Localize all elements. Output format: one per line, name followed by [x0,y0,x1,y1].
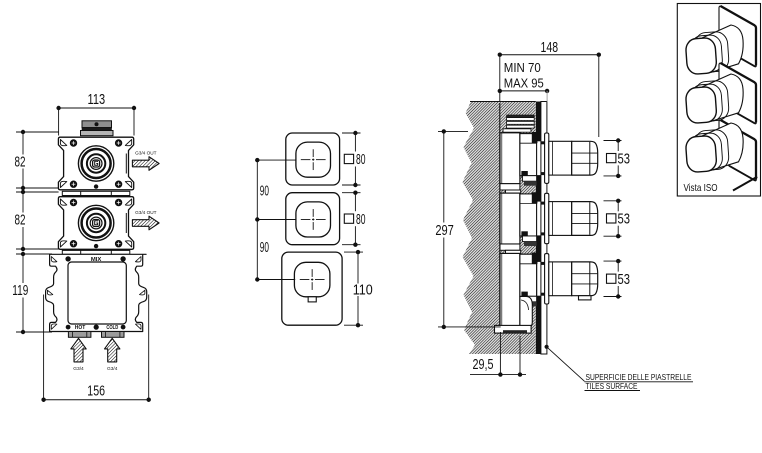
svg-text:119: 119 [12,283,28,299]
svg-text:HOT: HOT [75,325,86,331]
svg-text:110: 110 [353,283,373,299]
svg-text:MIN 70: MIN 70 [504,60,541,75]
svg-text:SUPERFICIE DELLE PIASTRELLE: SUPERFICIE DELLE PIASTRELLE [586,373,692,382]
svg-text:G3/4 OUT: G3/4 OUT [135,150,156,155]
svg-text:80: 80 [356,152,366,168]
svg-text:53: 53 [618,151,631,167]
svg-text:MAX 95: MAX 95 [504,75,544,90]
svg-text:53: 53 [618,212,631,228]
svg-text:90: 90 [260,240,269,256]
svg-text:80: 80 [356,212,366,228]
svg-text:90: 90 [260,183,269,199]
svg-text:297: 297 [435,223,454,239]
svg-text:82: 82 [15,154,26,170]
svg-text:148: 148 [541,40,559,56]
svg-text:82: 82 [15,213,26,229]
svg-text:G3/4 OUT: G3/4 OUT [135,210,156,215]
svg-text:156: 156 [87,383,105,399]
svg-text:G3/4: G3/4 [73,366,84,372]
svg-text:Vista ISO: Vista ISO [684,182,718,194]
svg-text:COLD: COLD [106,325,118,331]
svg-text:113: 113 [88,92,106,108]
svg-text:53: 53 [618,272,631,288]
svg-text:29,5: 29,5 [473,357,494,373]
svg-text:TILES SURFACE: TILES SURFACE [586,382,638,391]
svg-text:MIX: MIX [91,257,102,263]
svg-text:G3/4: G3/4 [107,366,118,372]
